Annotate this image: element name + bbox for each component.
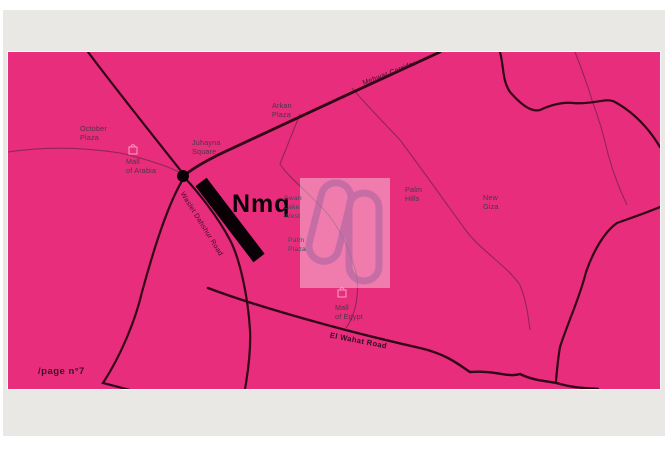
place-label-arkan-plaza: Arkan Plaza xyxy=(272,101,292,119)
place-label-juhayna-square: Juhayna Square xyxy=(192,138,221,156)
svg-text:West: West xyxy=(284,213,300,220)
nmq-label: Nmq xyxy=(232,190,291,218)
svg-text:Mall: Mall xyxy=(335,303,349,312)
svg-text:Plaza: Plaza xyxy=(272,110,291,119)
svg-text:Mall: Mall xyxy=(126,157,140,166)
page-number: /page n°7 xyxy=(38,366,85,377)
junction-dot xyxy=(177,170,189,182)
svg-text:Palm: Palm xyxy=(405,185,422,194)
svg-text:of Egypt: of Egypt xyxy=(335,312,363,321)
place-label-mall-of-egypt: Mall of Egypt xyxy=(335,303,363,321)
svg-text:Plaza: Plaza xyxy=(80,133,99,142)
map-card: Nmq October Plaza Mall of Arabia xyxy=(8,52,660,389)
road-east-curve xyxy=(556,207,660,381)
svg-text:of Arabia: of Arabia xyxy=(126,166,156,175)
svg-text:Swan: Swan xyxy=(284,195,302,202)
svg-text:Square: Square xyxy=(192,147,216,156)
place-label-mall-of-arabia: Mall of Arabia xyxy=(126,157,156,175)
svg-text:Plaza: Plaza xyxy=(288,246,306,253)
svg-text:Arkan: Arkan xyxy=(272,101,292,110)
place-label-october-plaza: October Plaza xyxy=(80,124,107,142)
road-minor-west-link xyxy=(8,148,183,174)
mall-icon xyxy=(129,145,137,154)
watermark-logo xyxy=(300,178,390,288)
road-southwest-branch xyxy=(103,176,185,389)
place-label-new-giza: New Giza xyxy=(483,193,499,211)
road-minor-east xyxy=(575,52,627,205)
svg-text:October: October xyxy=(80,124,107,133)
svg-text:New: New xyxy=(483,193,499,202)
svg-text:Giza: Giza xyxy=(483,202,499,211)
svg-text:Palm: Palm xyxy=(288,237,304,244)
place-label-swan-lake-west: Swan Lake West xyxy=(284,195,302,220)
svg-text:Hills: Hills xyxy=(405,194,420,203)
svg-text:Juhayna: Juhayna xyxy=(192,138,221,147)
place-label-palm-hills: Palm Hills xyxy=(405,185,422,203)
mall-icon xyxy=(338,288,346,297)
page-frame: Nmq October Plaza Mall of Arabia xyxy=(0,0,668,452)
road-label-mehwar-corridor: Mehwar Corridor xyxy=(362,60,418,87)
road-el-wahat xyxy=(208,288,598,389)
city-map-image: Nmq October Plaza Mall of Arabia xyxy=(8,52,660,389)
svg-text:Lake: Lake xyxy=(284,204,300,211)
